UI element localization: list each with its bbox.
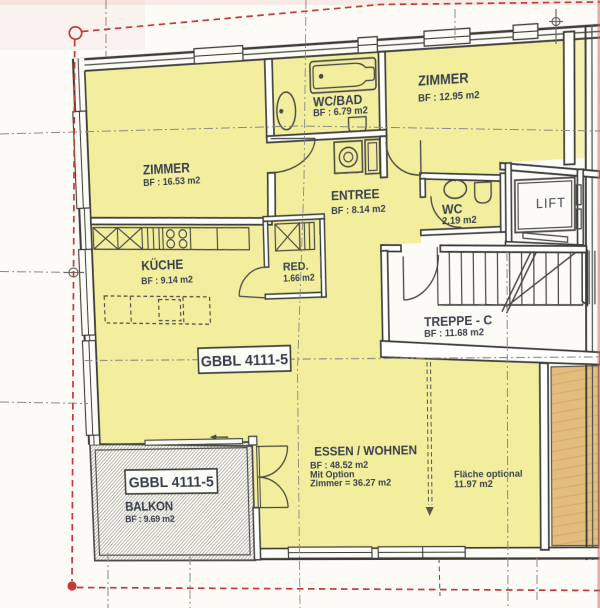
svg-text:LIFT: LIFT — [536, 195, 566, 212]
svg-text:ENTREE: ENTREE — [331, 186, 380, 203]
svg-text:ZIMMER: ZIMMER — [418, 70, 469, 88]
svg-text:BF : 9.69 m2: BF : 9.69 m2 — [125, 514, 175, 525]
svg-text:KÜCHE: KÜCHE — [141, 256, 183, 273]
svg-text:BF : 9.14 m2: BF : 9.14 m2 — [141, 274, 193, 286]
svg-text:ESSEN / WOHNEN: ESSEN / WOHNEN — [314, 443, 417, 459]
svg-text:2.19 m2: 2.19 m2 — [442, 214, 477, 226]
svg-text:BALKON: BALKON — [125, 499, 173, 513]
svg-text:BF : 11.68 m2: BF : 11.68 m2 — [424, 327, 484, 339]
svg-text:GBBL 4111-5: GBBL 4111-5 — [201, 351, 289, 371]
svg-text:GBBL 4111-5: GBBL 4111-5 — [129, 473, 215, 491]
svg-text:Zimmer = 36.27 m2: Zimmer = 36.27 m2 — [310, 477, 391, 488]
svg-text:11.97 m2: 11.97 m2 — [454, 479, 493, 490]
svg-text:1.66 m2: 1.66 m2 — [283, 272, 315, 284]
